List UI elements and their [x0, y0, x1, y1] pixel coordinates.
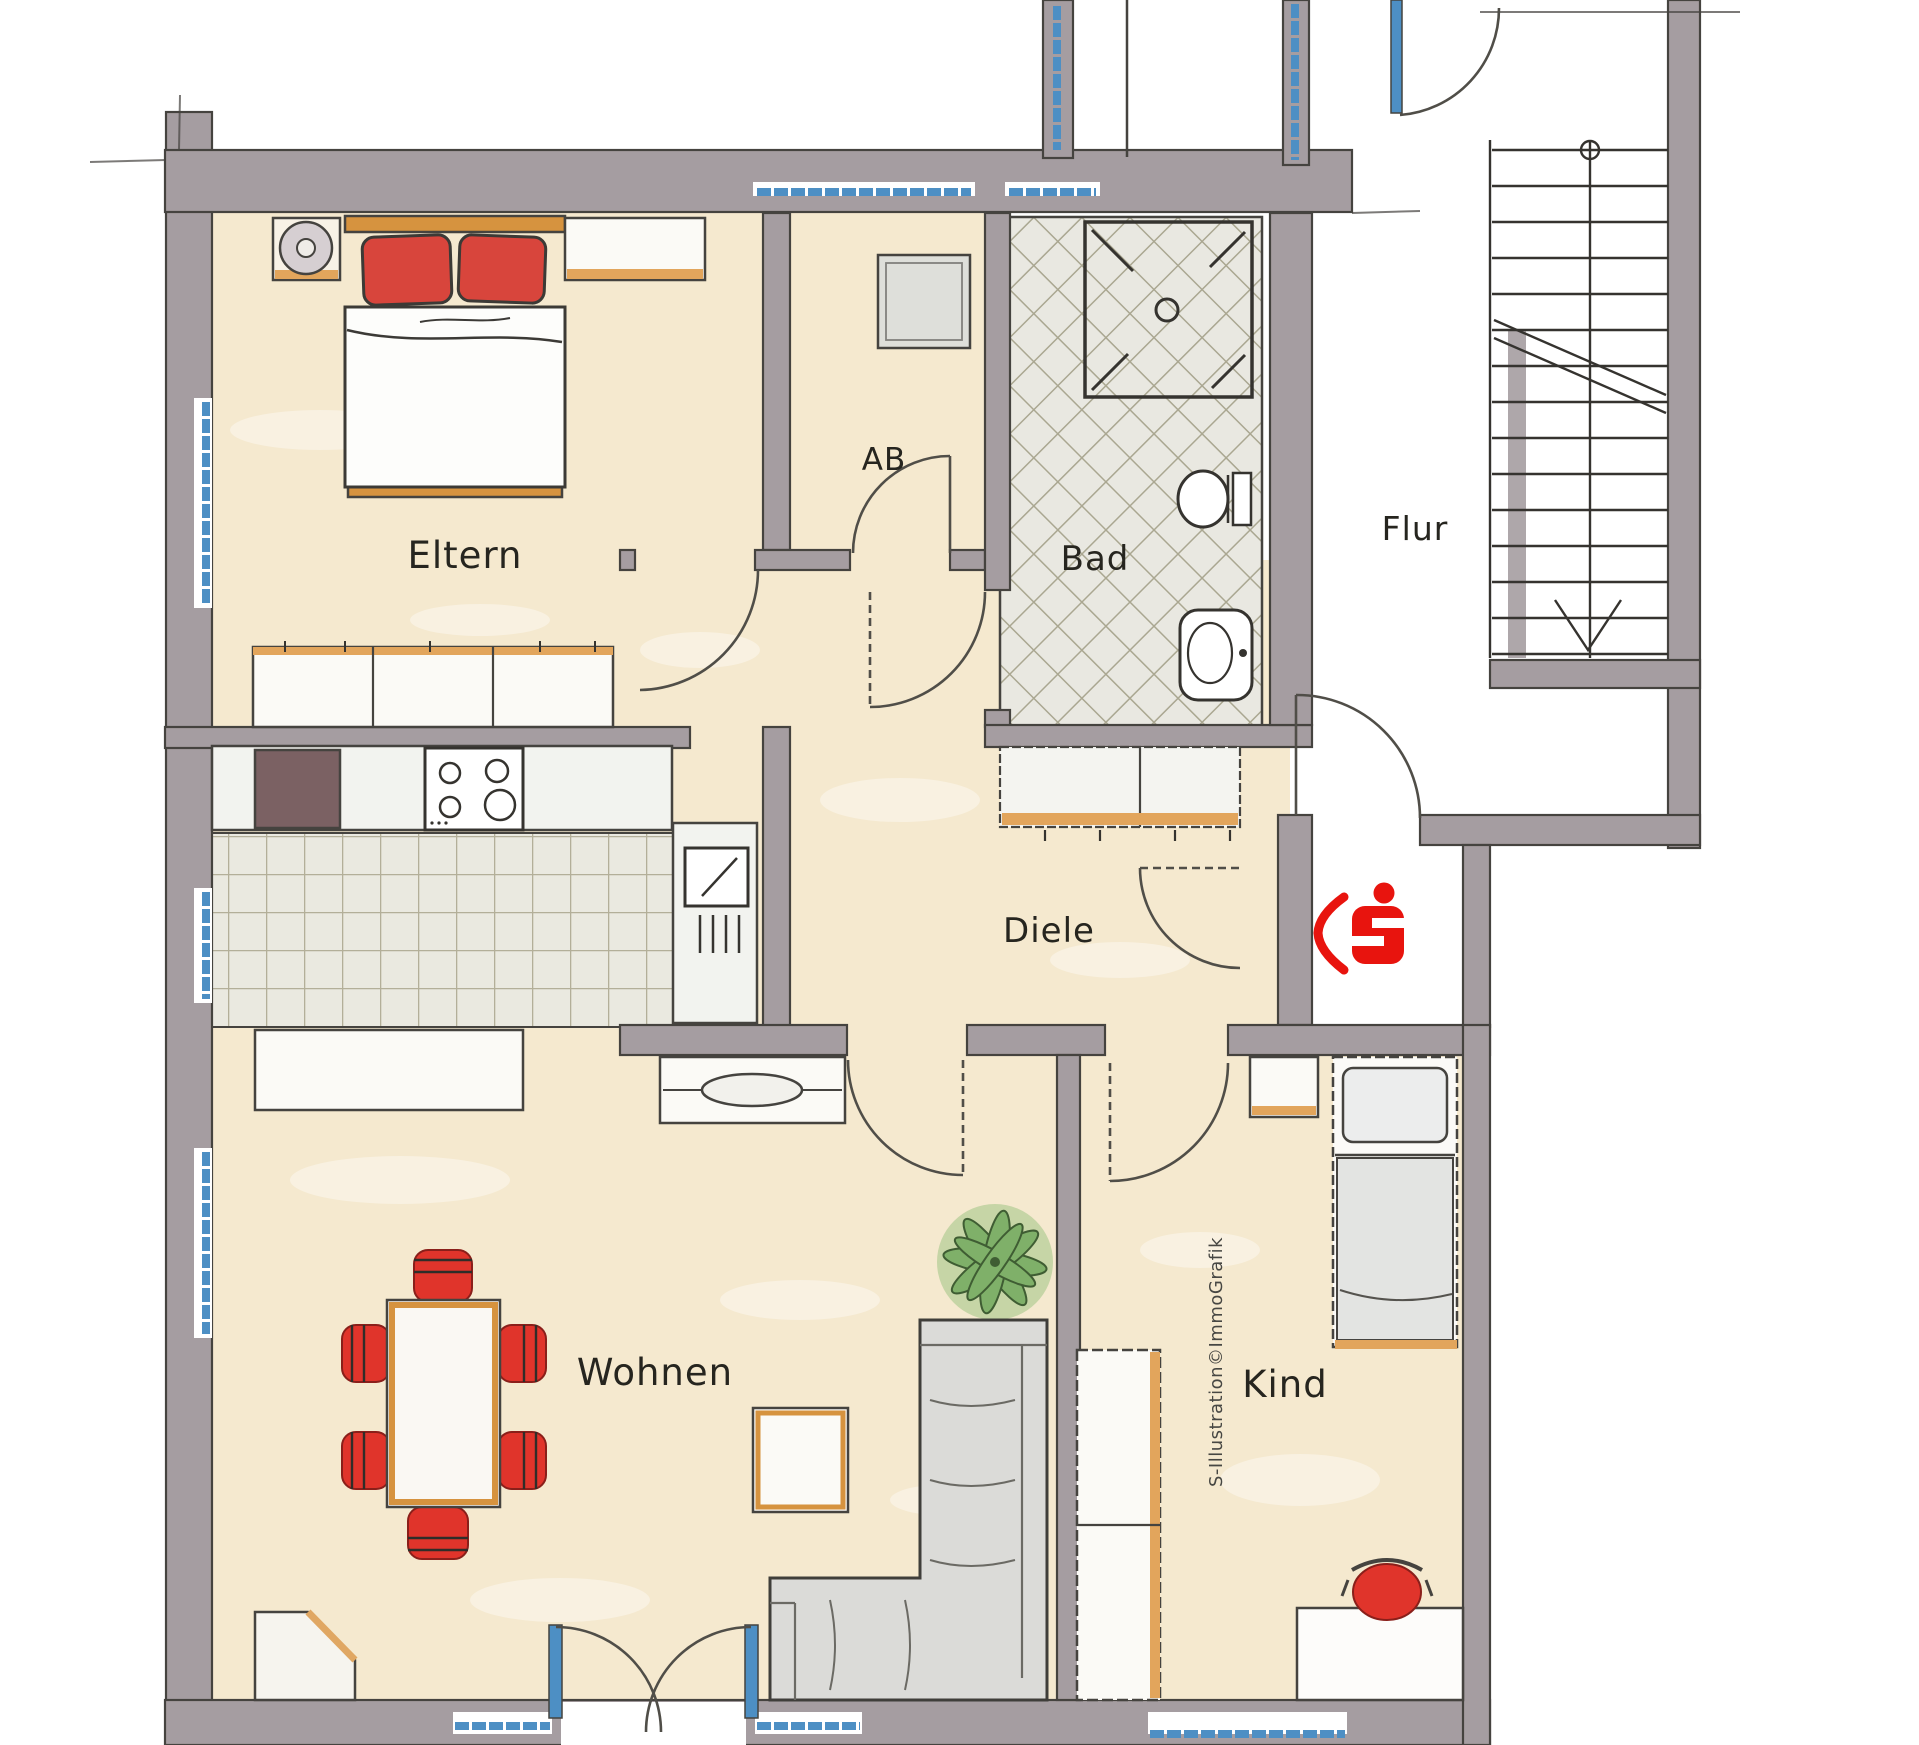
room-label-eltern: Eltern	[408, 534, 523, 577]
staircase	[1490, 140, 1668, 658]
stair-door-jamb	[1391, 0, 1402, 113]
stove-icon	[425, 748, 523, 830]
dining-table	[387, 1300, 500, 1507]
pillow-right	[458, 235, 546, 304]
wall-diele-flur	[1278, 815, 1312, 1025]
room-label-flur: Flur	[1382, 509, 1449, 548]
wall-eltern-door-side	[755, 550, 850, 570]
wall-stair-right	[1668, 0, 1700, 848]
kids-bed	[1333, 1057, 1457, 1349]
balcony-door-jamb-left	[549, 1625, 562, 1718]
coffee-table	[753, 1408, 848, 1512]
sideboard-north	[255, 1030, 523, 1110]
stair-arrow	[1555, 600, 1621, 650]
washing-machine	[878, 255, 970, 348]
sparkasse-s-icon	[1352, 883, 1404, 965]
door-arc-flur	[1296, 695, 1420, 818]
sink-basin	[685, 848, 748, 906]
stair-side-wall	[1508, 330, 1526, 658]
room-label-kind: Kind	[1242, 1363, 1327, 1406]
wall-stair-bottom	[1490, 660, 1700, 688]
balcony-door-jamb-right	[745, 1625, 758, 1718]
wardrobe-eltern	[253, 641, 613, 727]
toilet-icon	[1178, 471, 1251, 527]
entrance-chevron-icon	[1318, 897, 1344, 970]
bed-duvet	[345, 307, 565, 487]
wall-kitchen-diele	[763, 727, 790, 1030]
dresser-right	[565, 218, 705, 280]
bedside-table-left	[273, 218, 340, 280]
sparkasse-logo	[1318, 883, 1404, 971]
sink-icon	[1180, 610, 1252, 700]
wall-ab-bad	[985, 213, 1010, 590]
wall-alcove-right	[1463, 845, 1490, 1027]
sideboard-oval	[660, 1057, 845, 1123]
wall-kind-right	[1463, 1025, 1490, 1745]
watermark-text: S-Illustration©ImmoGrafik	[1206, 1237, 1227, 1487]
wall-middle-2	[967, 1025, 1105, 1055]
fridge	[255, 750, 340, 828]
door-arc-stair-landing	[1400, 8, 1499, 115]
desk	[1297, 1608, 1463, 1700]
kids-wardrobe	[1077, 1350, 1160, 1700]
wall-wohnen-kind	[1057, 1055, 1080, 1700]
room-label-ab: AB	[862, 442, 906, 478]
kids-blanket	[1337, 1158, 1453, 1340]
wall-top-outer	[165, 150, 1352, 212]
wall-bad-right	[1270, 213, 1312, 725]
room-label-diele: Diele	[1003, 911, 1095, 951]
storage-room-furniture	[878, 255, 970, 348]
plant-icon	[937, 1204, 1053, 1320]
room-label-bad: Bad	[1061, 539, 1130, 579]
kitchen-tile-floor	[212, 833, 673, 1027]
kids-pillow	[1343, 1068, 1447, 1142]
kitchen-sink-unit	[673, 823, 757, 1023]
wall-ab-left	[763, 213, 790, 550]
wall-bad-diele	[985, 725, 1312, 747]
hallway-furniture	[1000, 747, 1240, 841]
pillow-left	[362, 234, 452, 305]
bed-headboard	[345, 216, 565, 232]
kids-nightstand	[1250, 1057, 1318, 1117]
room-label-wohnen: Wohnen	[577, 1351, 733, 1394]
wall-flur-bottom	[1420, 815, 1700, 845]
wall-middle-1	[620, 1025, 847, 1055]
wall-middle-3	[1228, 1025, 1490, 1055]
floor-plan: Eltern AB Bad Flur Diele Wohnen Kind S-I…	[0, 0, 1919, 1745]
